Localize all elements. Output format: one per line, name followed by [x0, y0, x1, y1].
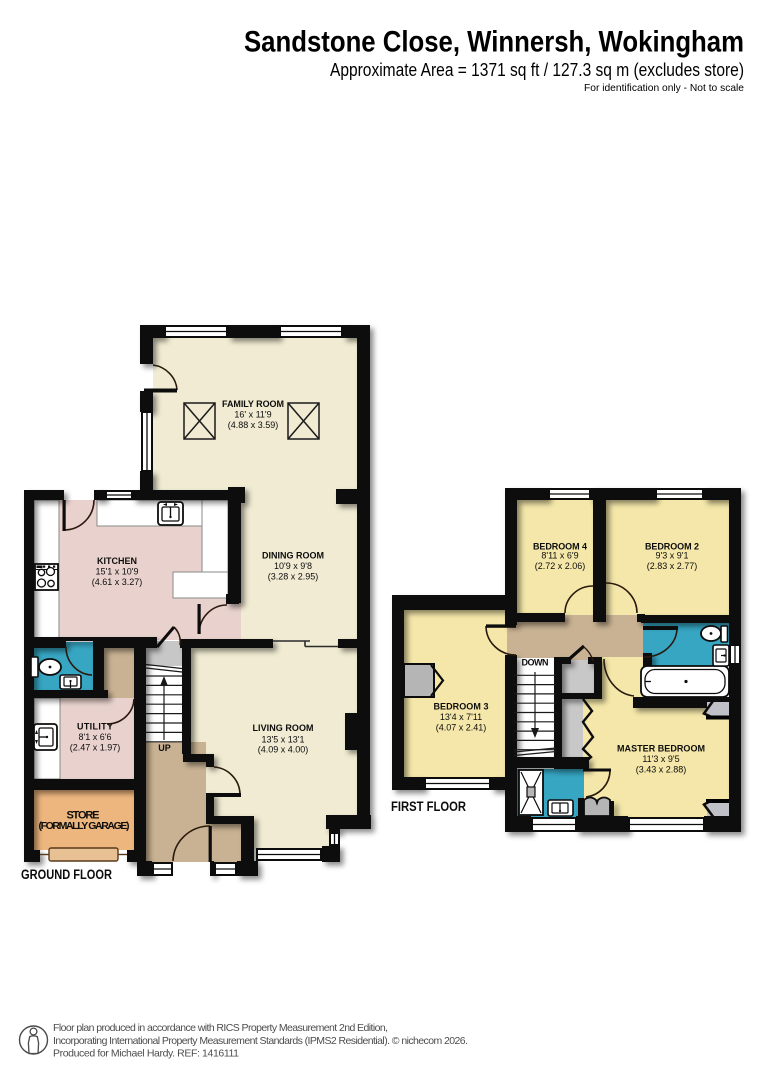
svg-text:MASTER BEDROOM: MASTER BEDROOM — [617, 744, 705, 754]
svg-text:(2.83 x 2.77): (2.83 x 2.77) — [647, 561, 698, 571]
svg-text:GROUND FLOOR: GROUND FLOOR — [21, 867, 112, 882]
svg-text:UTILITY: UTILITY — [77, 722, 113, 732]
svg-text:KITCHEN: KITCHEN — [97, 556, 137, 566]
svg-text:11'3 x 9'5: 11'3 x 9'5 — [642, 754, 679, 764]
svg-text:BEDROOM 3: BEDROOM 3 — [434, 702, 489, 712]
svg-text:(3.28 x 2.95): (3.28 x 2.95) — [268, 572, 319, 582]
svg-text:LIVING ROOM: LIVING ROOM — [253, 723, 314, 733]
svg-text:UP: UP — [158, 743, 171, 753]
svg-text:FAMILY ROOM: FAMILY ROOM — [222, 399, 284, 409]
svg-text:16' x 11'9: 16' x 11'9 — [234, 410, 271, 420]
svg-text:Approximate Area = 1371 sq ft: Approximate Area = 1371 sq ft / 127.3 sq… — [330, 60, 744, 80]
svg-text:(2.47 x 1.97): (2.47 x 1.97) — [70, 743, 121, 753]
svg-text:(4.09 x 4.00): (4.09 x 4.00) — [258, 744, 309, 754]
svg-text:(4.07 x 2.41): (4.07 x 2.41) — [436, 723, 487, 733]
svg-text:13'4 x 7'11: 13'4 x 7'11 — [440, 712, 482, 722]
svg-text:(4.61 x 3.27): (4.61 x 3.27) — [92, 577, 143, 587]
svg-text:(2.72 x 2.06): (2.72 x 2.06) — [535, 561, 586, 571]
svg-text:9'3 x 9'1: 9'3 x 9'1 — [656, 550, 689, 560]
svg-text:8'11 x 6'9: 8'11 x 6'9 — [541, 550, 578, 560]
svg-text:13'5 x 13'1: 13'5 x 13'1 — [262, 734, 305, 744]
svg-text:(4.88 x 3.59): (4.88 x 3.59) — [228, 420, 279, 430]
svg-text:DOWN: DOWN — [522, 658, 549, 668]
svg-text:DINING ROOM: DINING ROOM — [262, 551, 324, 561]
svg-text:10'9 x 9'8: 10'9 x 9'8 — [274, 561, 312, 571]
svg-text:For identification only - Not: For identification only - Not to scale — [584, 82, 744, 94]
svg-text:8'1 x 6'6: 8'1 x 6'6 — [79, 732, 112, 742]
svg-text:Sandstone Close, Winnersh, Wok: Sandstone Close, Winnersh, Wokingham — [244, 26, 744, 59]
svg-text:15'1 x 10'9: 15'1 x 10'9 — [96, 567, 139, 577]
svg-text:Floor plan produced in accorda: Floor plan produced in accordance with R… — [53, 1022, 388, 1034]
svg-text:FIRST FLOOR: FIRST FLOOR — [391, 799, 466, 814]
svg-text:Incorporating International Pr: Incorporating International Property Mea… — [53, 1035, 468, 1047]
svg-text:(3.43 x 2.88): (3.43 x 2.88) — [636, 765, 687, 775]
svg-text:(FORMALLY GARAGE): (FORMALLY GARAGE) — [39, 820, 130, 832]
svg-text:Produced for Michael Hardy.: Produced for Michael Hardy. REF: 1416111 — [53, 1048, 239, 1060]
